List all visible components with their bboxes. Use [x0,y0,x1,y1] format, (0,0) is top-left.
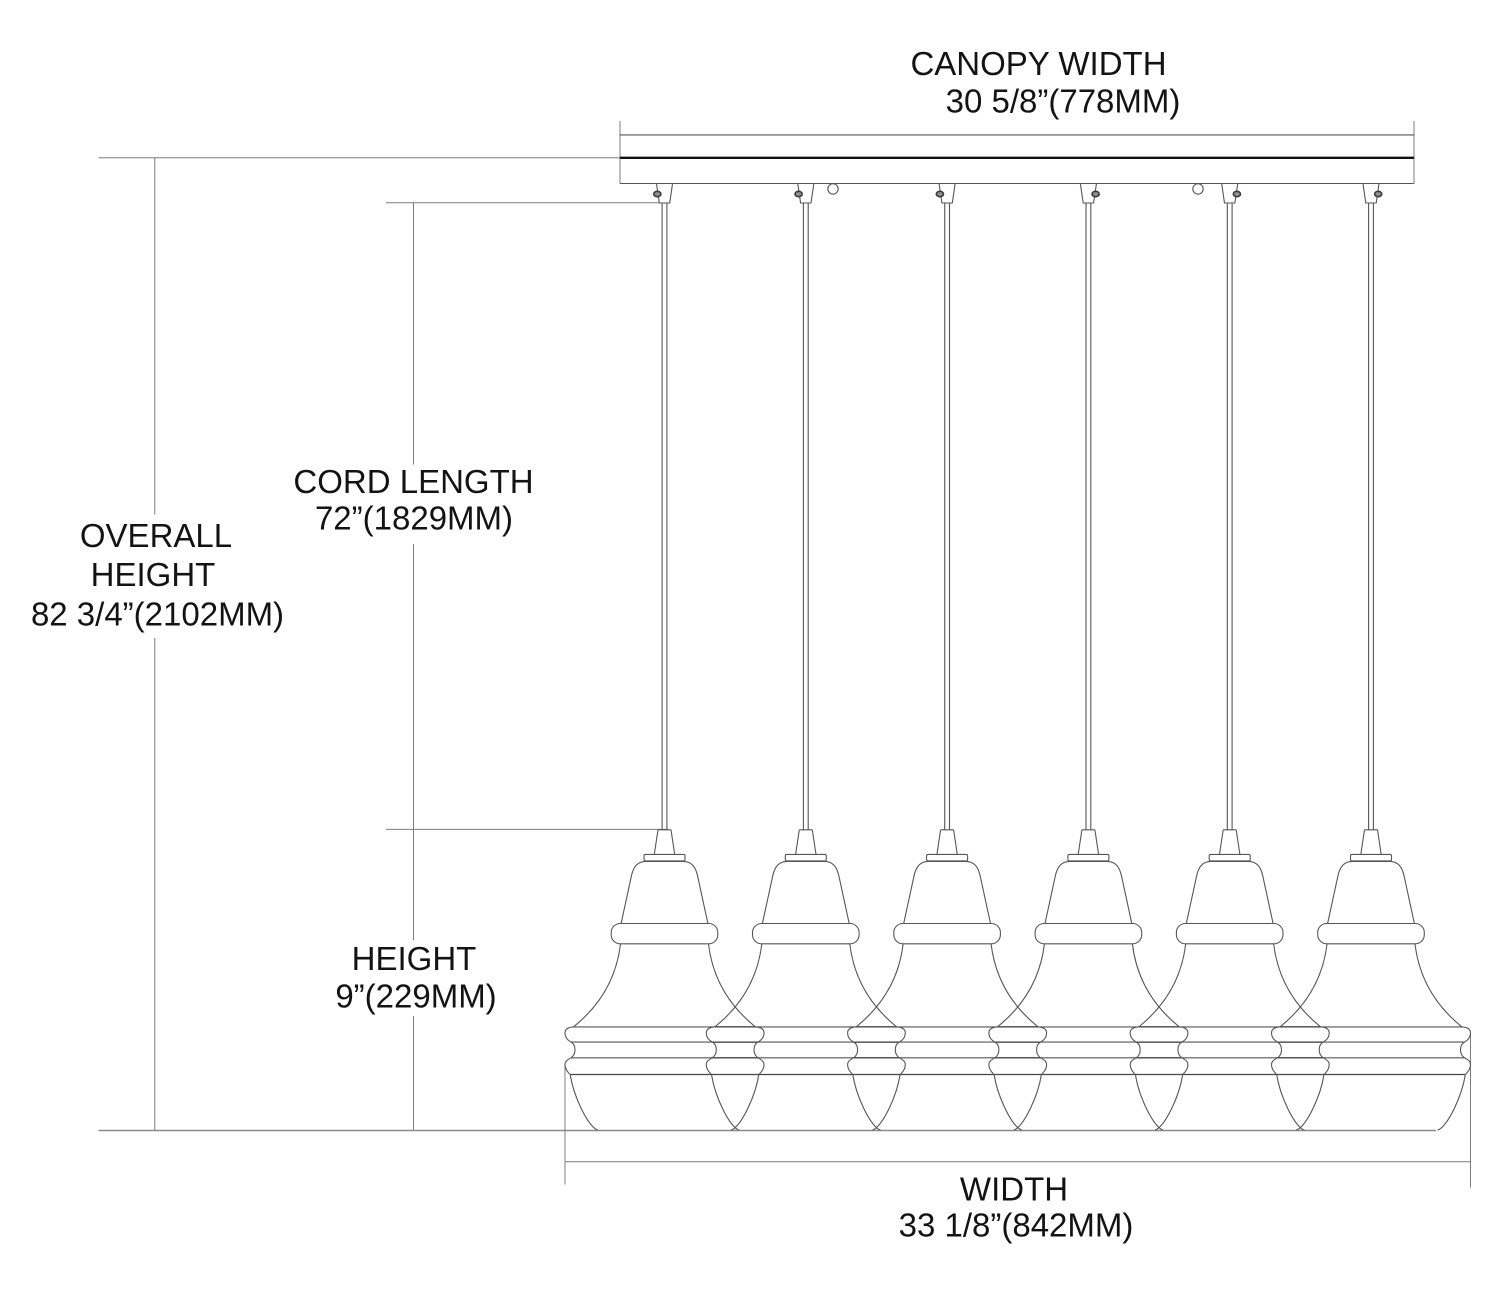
svg-text:82 3/4”(2102MM): 82 3/4”(2102MM) [31,595,284,632]
svg-text:72”(1829MM): 72”(1829MM) [315,500,513,537]
svg-text:30 5/8”(778MM): 30 5/8”(778MM) [946,82,1181,119]
svg-text:9”(229MM): 9”(229MM) [335,977,496,1014]
svg-text:OVERALL: OVERALL [80,517,232,554]
svg-text:33 1/8”(842MM): 33 1/8”(842MM) [899,1207,1134,1244]
svg-text:HEIGHT: HEIGHT [91,556,216,593]
svg-text:WIDTH: WIDTH [960,1170,1068,1207]
svg-text:CANOPY WIDTH: CANOPY WIDTH [910,45,1166,82]
svg-text:HEIGHT: HEIGHT [352,940,477,977]
svg-text:CORD LENGTH: CORD LENGTH [293,463,533,500]
